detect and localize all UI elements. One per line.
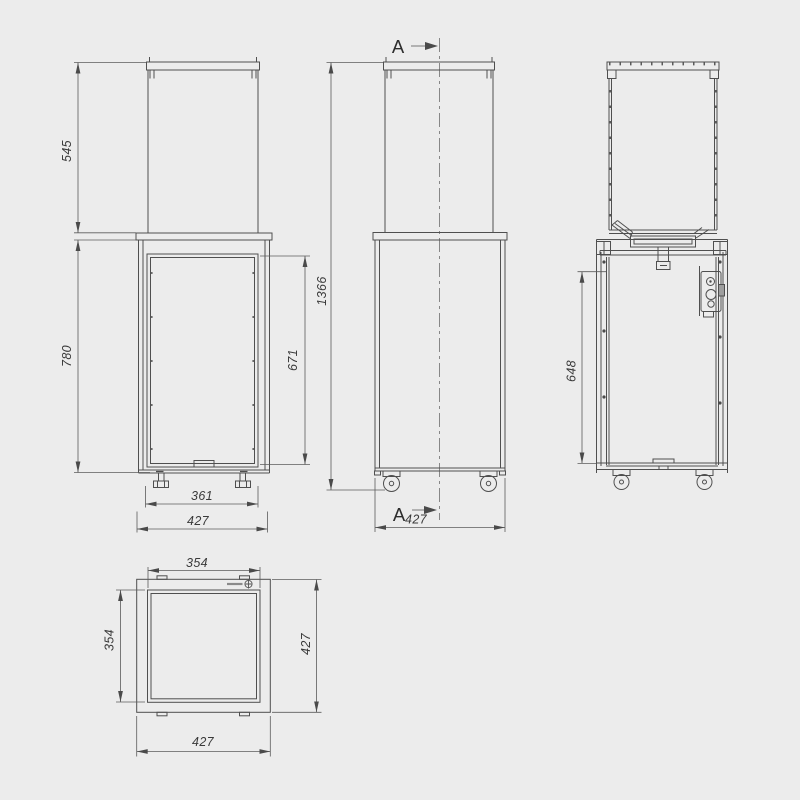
dim-total-height-label: 1366 — [315, 276, 329, 305]
dim-side-depth-label: 427 — [405, 513, 428, 527]
dimension-feet-spacing: 361 — [146, 486, 259, 508]
plan-base-outline — [137, 576, 271, 716]
base-handle-notch — [653, 459, 674, 463]
section-casters — [613, 470, 713, 490]
front-door-panel — [147, 254, 258, 467]
burner-assembly — [600, 221, 726, 270]
dim-door-height-label: 671 — [286, 349, 300, 371]
drawing-canvas: 545 780 671 361 427 — [0, 0, 800, 800]
dimension-plan-inner-width: 354 — [148, 556, 260, 588]
dimension-front-width: 427 — [137, 512, 268, 533]
side-view: A 1366 A 427 — [315, 36, 507, 532]
dimension-door-height: 671 — [260, 256, 310, 465]
dim-glass-height-label: 545 — [60, 140, 74, 162]
section-mark-bottom-label: A — [393, 504, 406, 525]
drawing-sheet: 545 780 671 361 427 — [0, 0, 800, 800]
front-feet — [154, 473, 251, 488]
dim-plan-outer-depth-label: 427 — [299, 632, 313, 655]
section-glass-frame — [607, 62, 719, 230]
dimension-cavity-height: 648 — [565, 272, 607, 464]
dim-cavity-height-label: 648 — [565, 360, 579, 382]
dimension-plan-inner-depth: 354 — [103, 590, 146, 702]
side-casters — [383, 471, 497, 492]
dim-feet-spacing-label: 361 — [191, 489, 213, 503]
dimension-body-height: 780 — [60, 240, 150, 473]
dim-body-height-label: 780 — [60, 345, 74, 367]
dimension-glass-height: 545 — [60, 63, 146, 233]
front-view: 545 780 671 361 427 — [60, 57, 310, 533]
dim-plan-inner-width-label: 354 — [186, 556, 208, 570]
plan-view: 354 354 427 427 — [103, 556, 322, 757]
section-mark-top-label: A — [392, 36, 405, 57]
dim-front-width-label: 427 — [187, 514, 210, 528]
gas-control-valve — [700, 266, 725, 317]
front-cabinet — [136, 233, 272, 488]
section-mark-top: A — [392, 36, 438, 57]
side-cabinet — [373, 233, 507, 476]
brand-mark-icon — [227, 580, 252, 589]
section-view: 648 — [565, 62, 728, 490]
section-arrow-top-icon — [425, 42, 438, 50]
dimension-plan-outer-depth: 427 — [272, 580, 322, 713]
dim-plan-inner-depth-label: 354 — [103, 629, 117, 651]
dimension-plan-outer-width: 427 — [137, 716, 271, 757]
front-glass-screen — [147, 57, 260, 233]
section-cabinet — [597, 240, 728, 474]
side-glass-screen — [384, 57, 495, 233]
dim-plan-outer-width-label: 427 — [192, 735, 215, 749]
